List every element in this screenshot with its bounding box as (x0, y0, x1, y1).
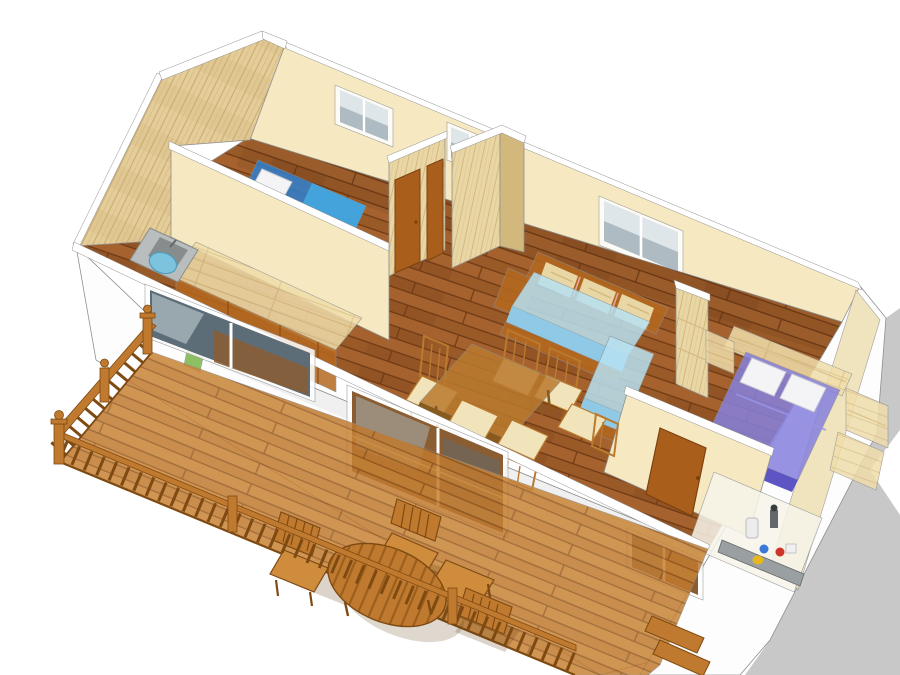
hall-wardrobe-right (450, 125, 526, 268)
hall-door-2 (427, 159, 443, 261)
hall-wardrobe-left (387, 131, 447, 276)
gas-bottle-yellow (753, 556, 764, 565)
floorplan-render (0, 0, 900, 675)
railing-post (100, 359, 109, 402)
scene-canvas (0, 0, 900, 675)
gas-bottle-blue (760, 545, 769, 554)
gas-bottle-red (776, 548, 785, 557)
railing-post (228, 496, 237, 532)
railing-post (448, 588, 457, 624)
master-wardrobe-column (674, 280, 710, 398)
